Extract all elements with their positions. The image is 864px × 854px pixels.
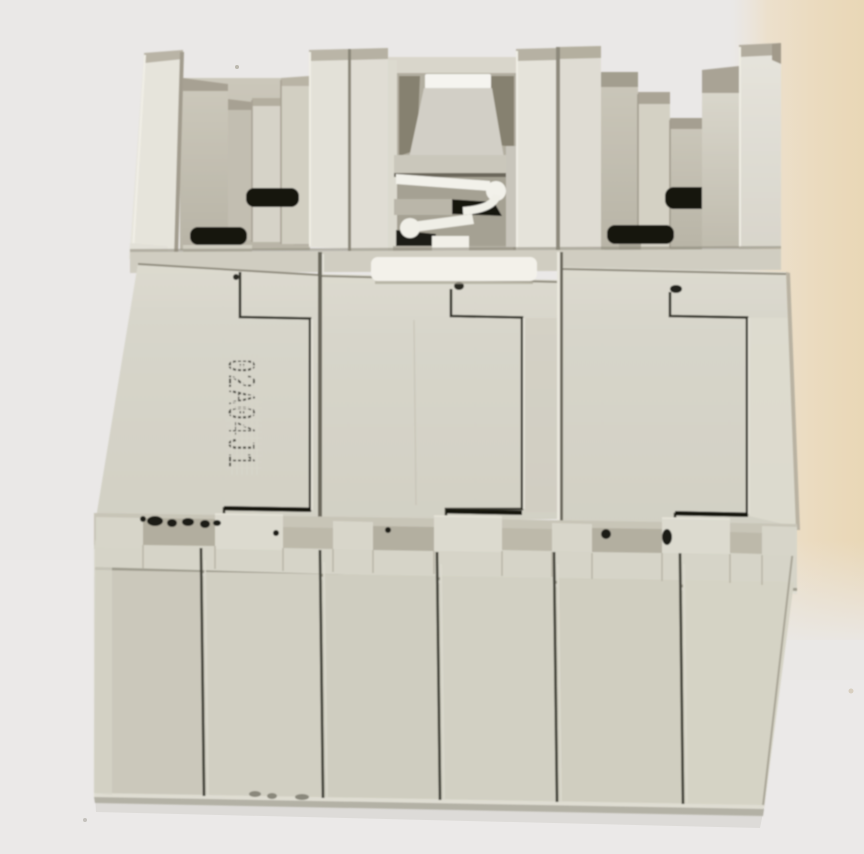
svg-text:02A04J1: 02A04J1 (217, 358, 261, 468)
